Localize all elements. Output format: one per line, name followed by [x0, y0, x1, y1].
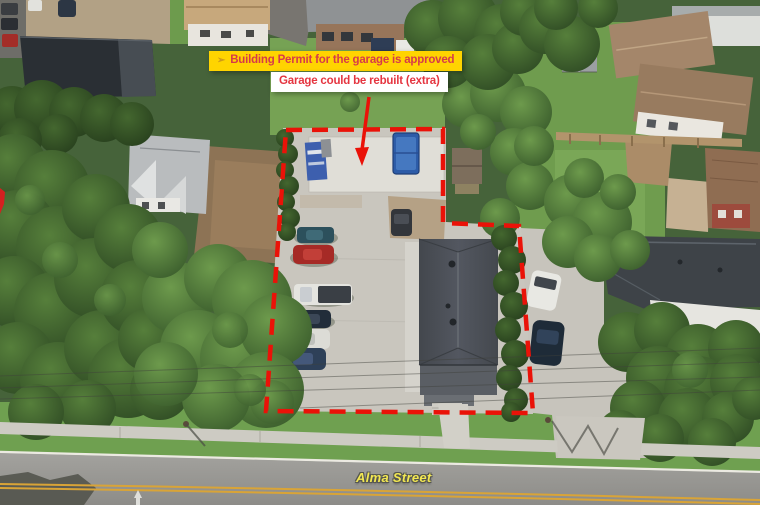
car-red-small [2, 34, 18, 47]
dirt-patch [210, 160, 280, 250]
driveway-stain [300, 195, 362, 208]
house-right-brick [705, 148, 760, 232]
pickup-truck-white [294, 284, 352, 305]
permit-banner-text: Building Permit for the garage is approv… [230, 54, 454, 66]
driveway-apron [556, 416, 645, 460]
van-dark [58, 0, 76, 17]
trailer-white [28, 0, 42, 11]
car-dark-mid-driveway [391, 209, 412, 236]
building-west-walkway [405, 242, 421, 392]
street-name-label: Alma Street [356, 470, 432, 485]
main-building [405, 239, 498, 415]
house-left-white [128, 134, 210, 214]
swimming-pool [393, 133, 419, 174]
aerial-photo: ➢Building Permit for the garage is appro… [0, 0, 760, 505]
house-top-left-beige [184, 0, 270, 46]
suv-dark-neighbor [529, 319, 565, 366]
rebuild-note-banner: Garage could be rebuilt (extra) [271, 72, 448, 92]
rebuild-banner-text: Garage could be rebuilt (extra) [279, 75, 440, 87]
permit-approved-banner: ➢Building Permit for the garage is appro… [209, 51, 462, 71]
small-shed-by-pool [452, 148, 482, 194]
arrow-bullet-icon: ➢ [217, 55, 225, 66]
stone-patio [666, 178, 710, 232]
rear-roof-section [420, 365, 497, 395]
solar-panel [371, 38, 394, 51]
